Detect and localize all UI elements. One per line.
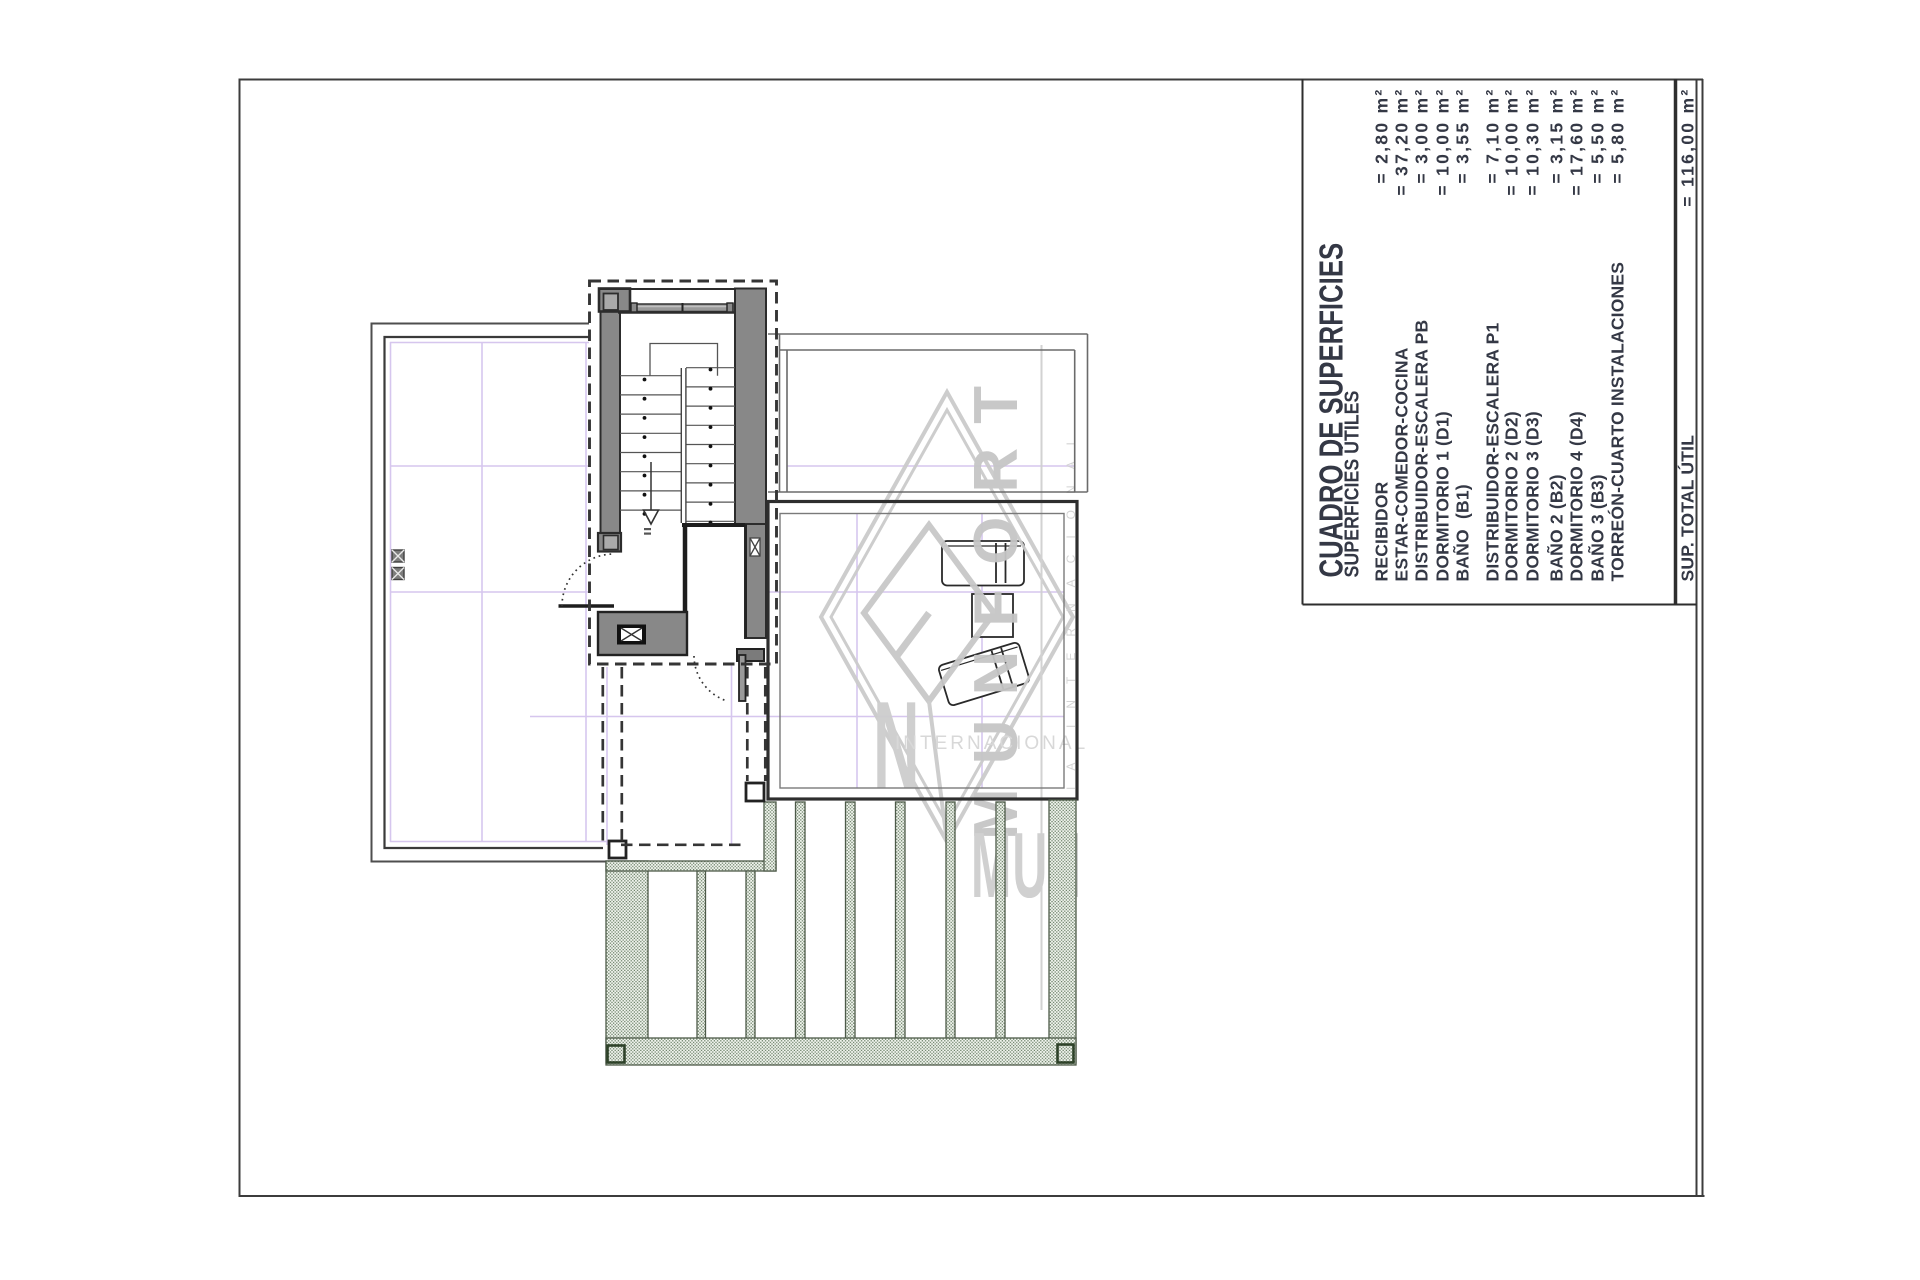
svg-text:MUNFORT: MUNFORT xyxy=(971,813,1220,917)
svg-text:MUNFORT: MUNFORT xyxy=(962,362,1031,840)
svg-text:INTERNACIONAL: INTERNACIONAL xyxy=(895,733,1088,754)
